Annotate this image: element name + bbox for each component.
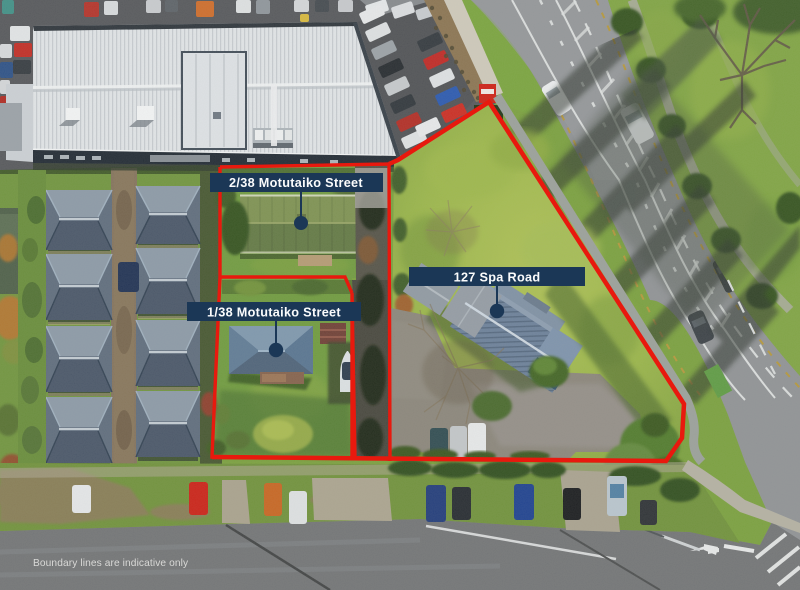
svg-text:1/38 Motutaiko Street: 1/38 Motutaiko Street bbox=[207, 306, 341, 320]
svg-text:Boundary lines are indicative: Boundary lines are indicative only bbox=[33, 558, 189, 569]
svg-text:2/38 Motutaiko Street: 2/38 Motutaiko Street bbox=[229, 176, 363, 190]
svg-text:127 Spa Road: 127 Spa Road bbox=[454, 271, 541, 285]
